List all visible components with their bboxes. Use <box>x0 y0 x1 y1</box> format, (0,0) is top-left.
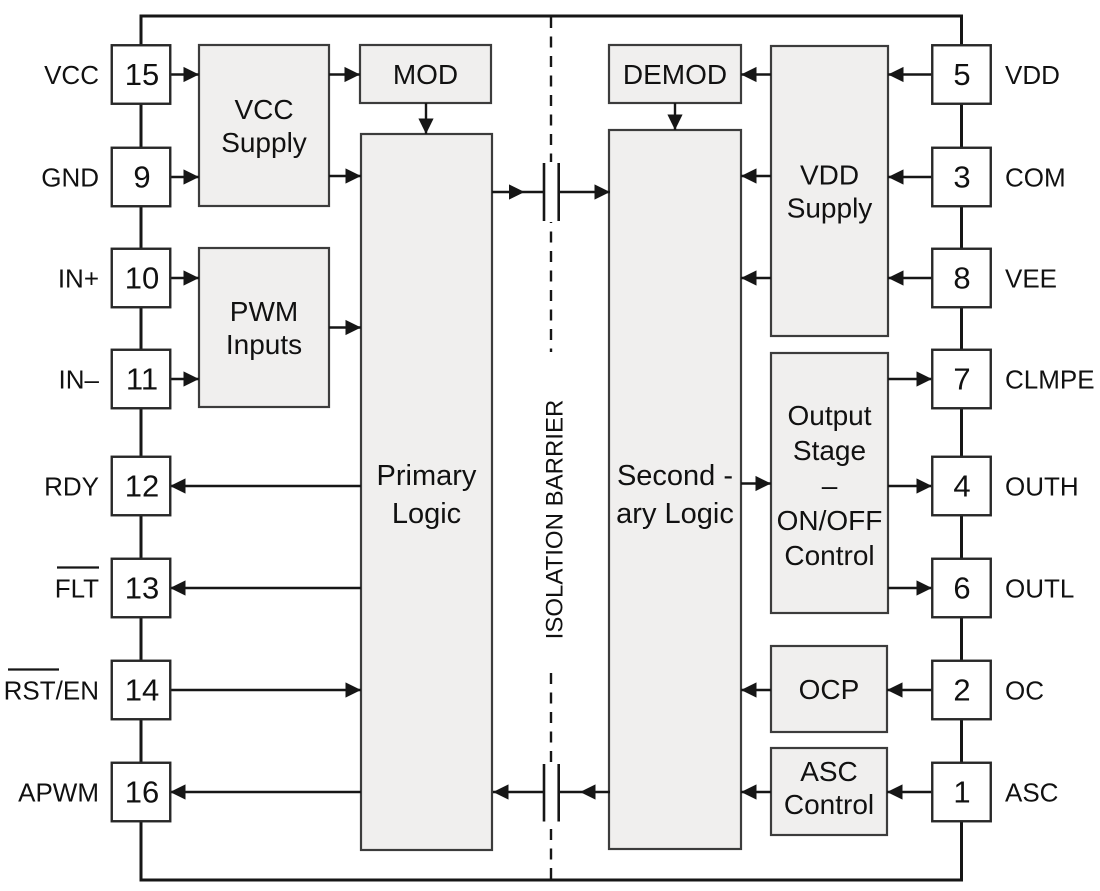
svg-text:Supply: Supply <box>221 127 307 158</box>
svg-text:13: 13 <box>125 571 159 606</box>
svg-text:ary Logic: ary Logic <box>616 498 734 530</box>
svg-text:16: 16 <box>125 775 159 810</box>
svg-text:COM: COM <box>1005 163 1066 193</box>
svg-text:CLMPE: CLMPE <box>1005 365 1095 395</box>
svg-text:2: 2 <box>953 673 970 708</box>
svg-text:Output: Output <box>787 400 871 431</box>
svg-text:12: 12 <box>125 469 159 504</box>
svg-text:FLT: FLT <box>55 574 99 604</box>
svg-text:Stage: Stage <box>793 435 866 466</box>
svg-text:14: 14 <box>125 673 159 708</box>
svg-text:11: 11 <box>126 362 158 397</box>
svg-text:RDY: RDY <box>44 472 99 502</box>
svg-text:OC: OC <box>1005 676 1044 706</box>
svg-text:MOD: MOD <box>393 59 458 90</box>
svg-text:Inputs: Inputs <box>226 329 302 360</box>
svg-text:15: 15 <box>125 57 159 92</box>
svg-text:6: 6 <box>953 571 970 606</box>
svg-text:RST/EN: RST/EN <box>4 676 99 706</box>
svg-text:10: 10 <box>125 261 159 296</box>
svg-text:–: – <box>822 470 838 501</box>
svg-text:7: 7 <box>953 362 970 397</box>
svg-text:ON/OFF: ON/OFF <box>777 505 883 536</box>
svg-text:3: 3 <box>953 160 970 195</box>
svg-text:1: 1 <box>953 775 970 810</box>
svg-text:ASC: ASC <box>800 756 858 787</box>
svg-text:9: 9 <box>133 160 150 195</box>
svg-text:Control: Control <box>784 789 874 820</box>
svg-text:PWM: PWM <box>230 296 298 327</box>
svg-text:Primary: Primary <box>377 460 477 492</box>
svg-text:VDD: VDD <box>800 160 859 191</box>
svg-text:ASC: ASC <box>1005 778 1058 808</box>
svg-text:ISOLATION BARRIER: ISOLATION BARRIER <box>542 400 569 640</box>
svg-text:Control: Control <box>784 540 874 571</box>
svg-text:5: 5 <box>953 57 970 92</box>
svg-text:OUTL: OUTL <box>1005 574 1074 604</box>
svg-text:IN–: IN– <box>59 365 100 395</box>
svg-text:Second -: Second - <box>617 460 733 492</box>
svg-text:OUTH: OUTH <box>1005 472 1079 502</box>
svg-text:OCP: OCP <box>799 674 860 705</box>
svg-text:Logic: Logic <box>392 498 461 530</box>
svg-text:GND: GND <box>41 163 99 193</box>
svg-text:VCC: VCC <box>234 94 293 125</box>
svg-text:VEE: VEE <box>1005 264 1057 294</box>
svg-text:IN+: IN+ <box>58 264 99 294</box>
svg-text:VCC: VCC <box>44 60 99 90</box>
svg-text:APWM: APWM <box>18 778 99 808</box>
svg-text:4: 4 <box>953 469 970 504</box>
svg-text:VDD: VDD <box>1005 60 1060 90</box>
svg-text:Supply: Supply <box>787 193 873 224</box>
svg-text:8: 8 <box>953 261 970 296</box>
svg-text:DEMOD: DEMOD <box>623 59 727 90</box>
